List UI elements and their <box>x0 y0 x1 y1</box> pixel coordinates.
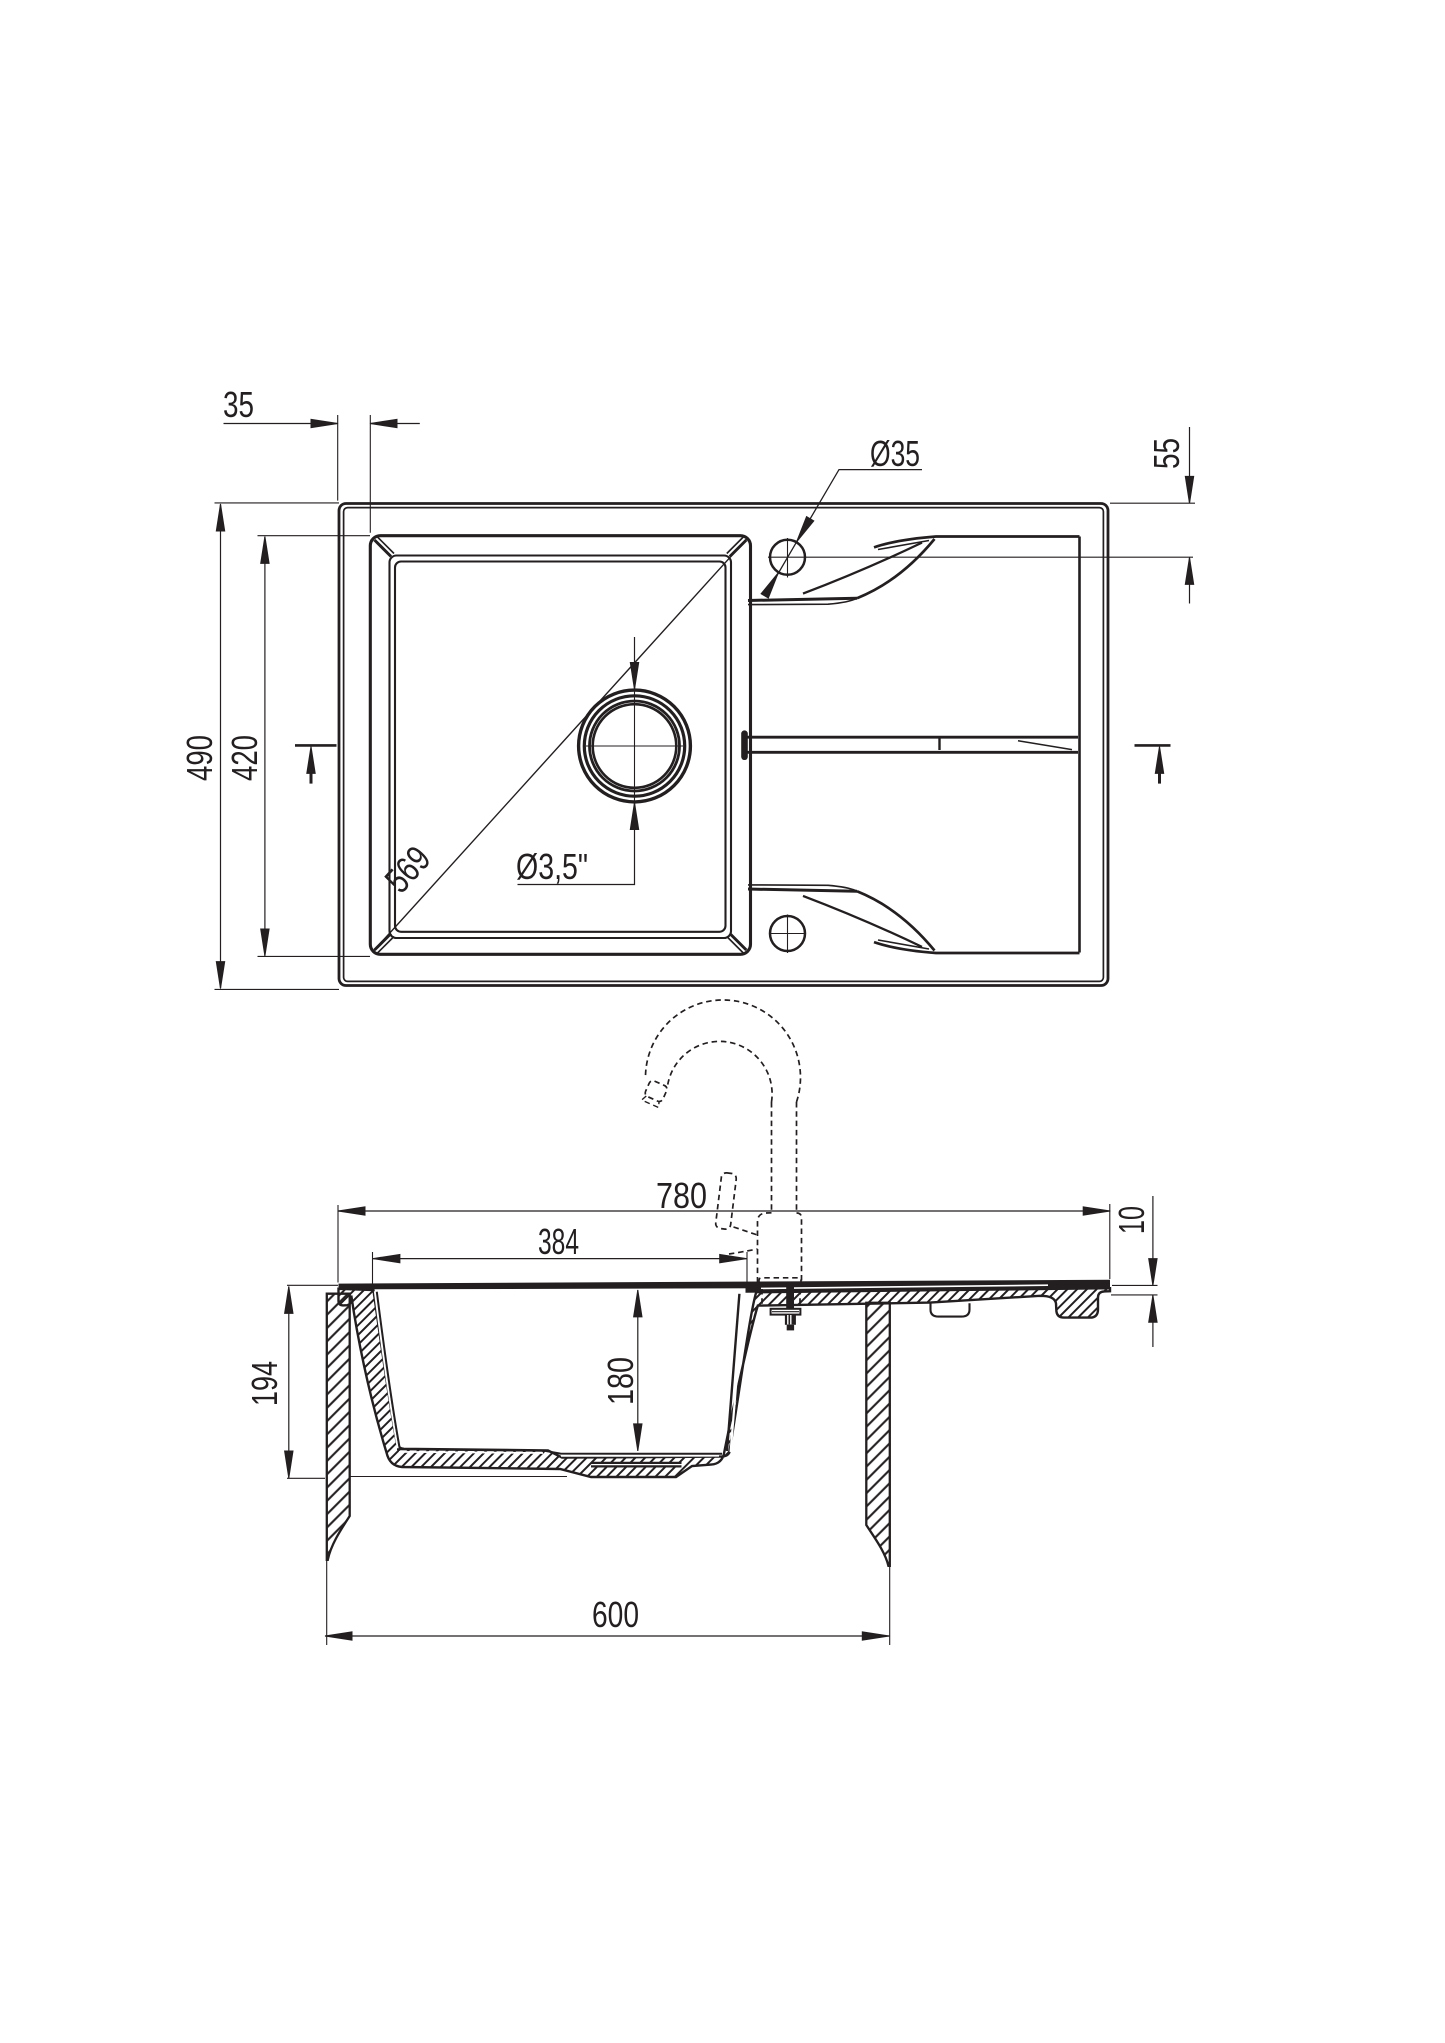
svg-text:180: 180 <box>600 1357 641 1405</box>
svg-text:Ø3,5": Ø3,5" <box>516 846 588 887</box>
svg-text:194: 194 <box>244 1361 285 1406</box>
svg-text:55: 55 <box>1146 438 1187 469</box>
svg-text:Ø35: Ø35 <box>870 433 920 474</box>
svg-text:35: 35 <box>223 384 254 425</box>
svg-text:384: 384 <box>538 1221 579 1262</box>
svg-text:780: 780 <box>656 1175 707 1216</box>
svg-text:10: 10 <box>1111 1206 1152 1234</box>
svg-text:420: 420 <box>224 735 265 781</box>
svg-text:490: 490 <box>179 735 220 781</box>
svg-text:600: 600 <box>592 1594 639 1635</box>
